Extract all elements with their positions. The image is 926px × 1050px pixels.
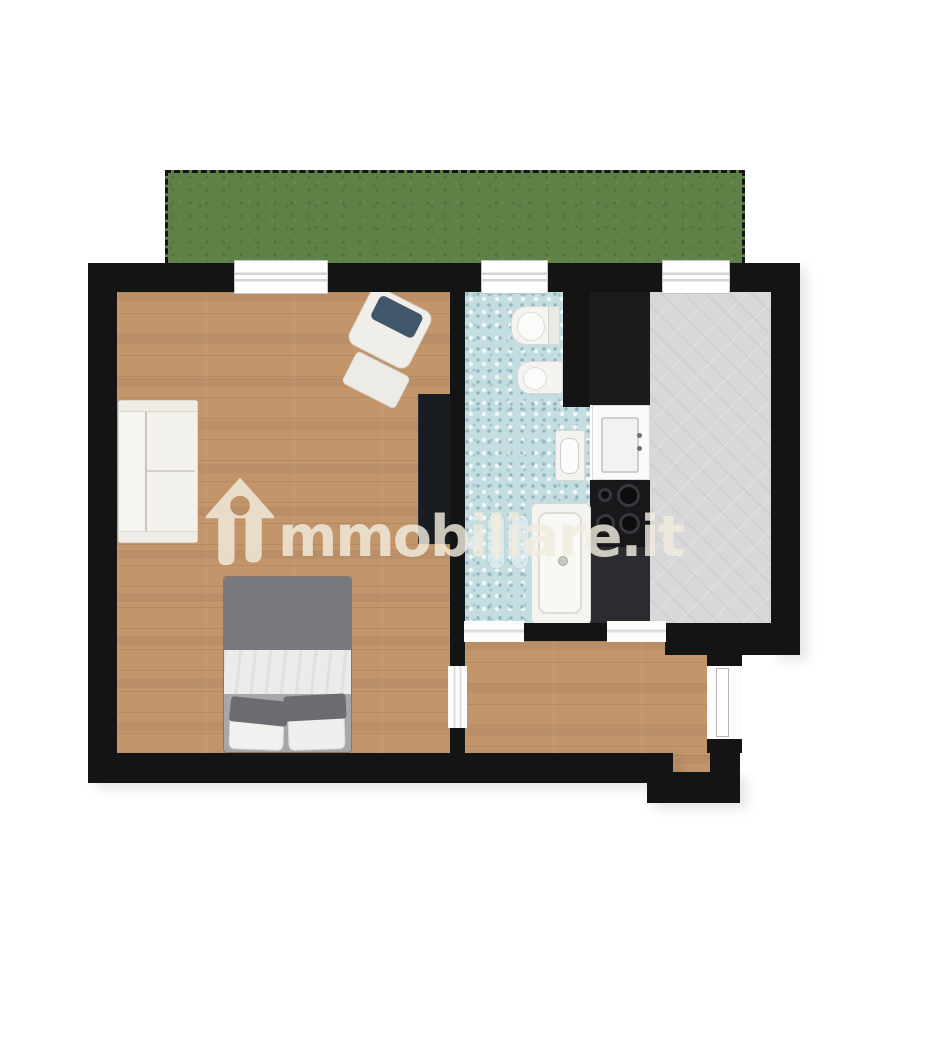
sofa-backrest <box>119 411 147 532</box>
radiator-bar-2 <box>511 515 529 569</box>
toilet <box>511 306 560 345</box>
bed-duvet <box>224 577 352 650</box>
floor-plan-stage: mmobiliare.it <box>0 0 926 1050</box>
hallway-floor-entry-step <box>673 755 710 772</box>
window-bathroom <box>481 260 548 294</box>
garden-terrace <box>165 170 745 263</box>
bathroom-radiator-valve <box>466 535 482 551</box>
radiator-bar-1 <box>487 513 505 569</box>
kitchen-counter-lower <box>590 547 650 623</box>
window-kitchen <box>662 260 730 294</box>
wall-kitchen-bottom <box>665 623 800 655</box>
entry-door-leaf <box>716 668 729 737</box>
hallway-floor <box>465 641 710 755</box>
door-living-to-hallway <box>448 666 467 728</box>
entry-door-jamb-top <box>707 653 742 666</box>
bed-sheet-fold <box>224 650 352 694</box>
window-living-room <box>234 260 328 294</box>
kitchen-tall-cabinet <box>590 292 650 405</box>
kitchen-faucet-dot-2 <box>637 446 642 451</box>
washbasin-bowl <box>560 438 579 474</box>
bidet-basin <box>523 367 547 390</box>
wardrobe <box>418 394 450 544</box>
kitchen-sink-unit <box>592 405 650 480</box>
cooktop-burner-small <box>598 488 612 502</box>
sofa-armrest-top <box>119 401 197 412</box>
door-bathroom <box>464 621 524 642</box>
kitchen-floor <box>650 292 771 623</box>
bathroom-radiator <box>487 513 533 571</box>
wall-bottom <box>88 753 673 783</box>
kitchen-faucet-dot-1 <box>637 433 642 438</box>
cooktop-burner-medium-right <box>619 513 640 534</box>
cooktop-burner-large <box>617 484 640 507</box>
bed-blanket-strip-right <box>283 693 346 721</box>
washbasin <box>555 430 585 481</box>
bathtub-drain <box>558 556 568 566</box>
sofa <box>118 400 198 543</box>
entry-door-jamb-bottom <box>707 739 742 753</box>
toilet-bowl <box>517 312 545 341</box>
wall-bathroom-kitchen <box>563 292 590 407</box>
sofa-armrest-bottom <box>119 531 197 542</box>
cooktop-burner-medium-left <box>596 514 615 533</box>
double-bed <box>223 576 352 753</box>
toilet-tank <box>548 307 559 344</box>
bathtub <box>531 503 591 625</box>
wall-right <box>771 263 800 655</box>
bidet <box>517 361 563 394</box>
wall-bathroom-bottom <box>523 623 608 641</box>
door-kitchen <box>607 621 666 642</box>
sofa-seat-divider <box>147 470 195 472</box>
kitchen-cooktop <box>590 480 650 547</box>
wall-left <box>88 263 117 783</box>
kitchen-sink-basin <box>601 417 639 473</box>
